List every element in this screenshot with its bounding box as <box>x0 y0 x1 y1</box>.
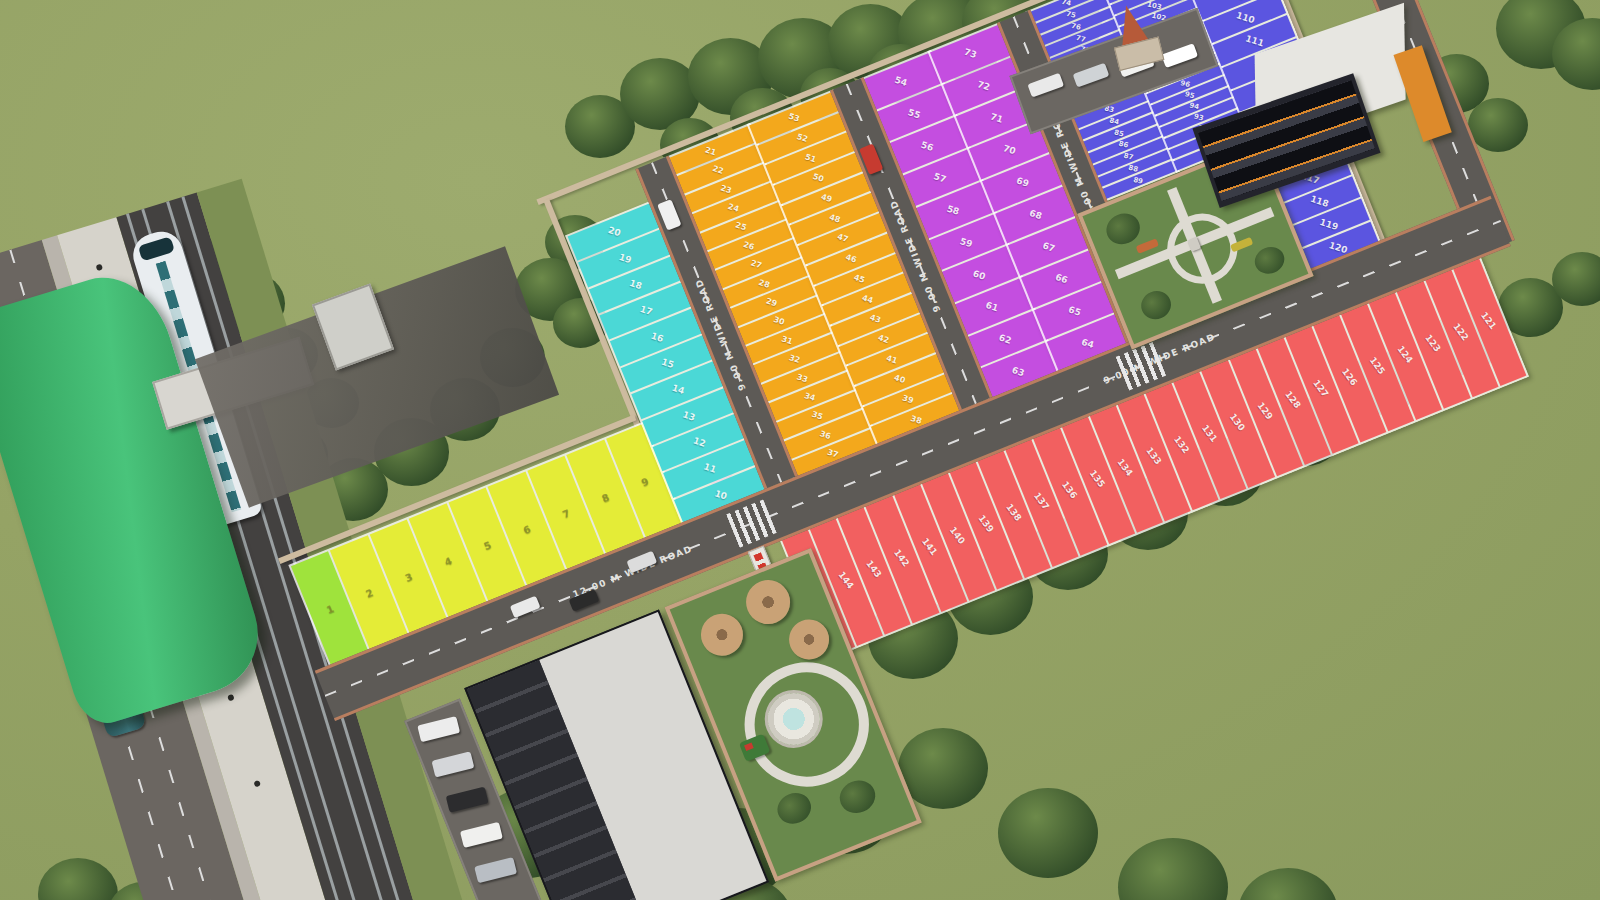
plot-number: 70 <box>1002 143 1017 156</box>
plot-number: 21 <box>704 145 717 157</box>
plot-number: 65 <box>1067 304 1082 317</box>
plot-number: 9 <box>639 475 650 488</box>
umbrella-icon <box>739 573 796 630</box>
plot-number: 36 <box>819 429 832 441</box>
plot-number: 63 <box>1011 365 1026 378</box>
plot-number: 132 <box>1172 434 1191 455</box>
plot-number: 47 <box>837 232 850 244</box>
plot-number: 19 <box>617 252 632 265</box>
plot-number: 54 <box>894 75 909 88</box>
plot-number: 71 <box>989 111 1004 124</box>
plot-number: 61 <box>985 300 1000 313</box>
plot-number: 67 <box>1041 240 1056 253</box>
plot-number: 137 <box>1032 491 1051 512</box>
plot-number: 126 <box>1339 367 1358 388</box>
plot-number: 1 <box>325 602 336 615</box>
plot-number: 140 <box>948 525 967 546</box>
plot-number: 118 <box>1309 194 1330 209</box>
plot-number: 7 <box>561 507 572 520</box>
plot-number: 87 <box>1123 152 1134 162</box>
plot-number: 58 <box>946 204 961 217</box>
plot-number: 37 <box>826 448 839 460</box>
plot-number: 68 <box>1028 208 1043 221</box>
plot-number: 128 <box>1284 389 1303 410</box>
plot-number: 88 <box>1128 164 1139 174</box>
plot-number: 46 <box>845 252 858 264</box>
plot-number: 74 <box>1061 0 1072 8</box>
plot-number: 52 <box>796 132 809 144</box>
parked-car <box>1161 43 1198 68</box>
plot-number: 121 <box>1479 310 1498 331</box>
plot-number: 138 <box>1004 502 1023 523</box>
plot-number: 51 <box>804 152 817 164</box>
plot-number: 40 <box>893 373 906 385</box>
plot-number: 62 <box>998 332 1013 345</box>
plot-number: 133 <box>1144 446 1163 467</box>
plot-number: 143 <box>864 559 883 580</box>
plot-number: 84 <box>1109 116 1120 126</box>
parked-car <box>431 751 474 777</box>
plot-number: 130 <box>1228 412 1247 433</box>
plot-number: 119 <box>1318 217 1339 232</box>
plot-number: 41 <box>885 353 898 365</box>
plot-number: 66 <box>1054 272 1069 285</box>
plot-number: 28 <box>758 277 771 289</box>
plot-number: 123 <box>1423 333 1442 354</box>
plot-number: 32 <box>788 353 801 365</box>
plot-number: 85 <box>1113 128 1124 138</box>
plot-number: 10 <box>713 488 728 501</box>
plot-number: 39 <box>902 393 915 405</box>
plot-number: 86 <box>1118 140 1129 150</box>
plot-number: 50 <box>812 172 825 184</box>
plot-number: 111 <box>1244 33 1265 48</box>
tree <box>1118 838 1228 900</box>
plot-number: 16 <box>649 330 664 343</box>
plot-number: 64 <box>1080 336 1095 349</box>
plot-number: 6 <box>521 523 532 536</box>
plot-number: 44 <box>861 293 874 305</box>
plot-number: 72 <box>976 79 991 92</box>
plot-number: 15 <box>660 357 675 370</box>
plot-number: 142 <box>892 547 911 568</box>
plot-number: 76 <box>1070 22 1081 32</box>
plot-number: 55 <box>907 107 922 120</box>
plot-number: 122 <box>1451 321 1470 342</box>
plot-number: 73 <box>963 47 978 60</box>
plot-number: 53 <box>788 112 801 124</box>
site-plan-scene: 123456789 2019181716151413121110 2122232… <box>0 0 1600 900</box>
plot-number: 109 <box>1225 0 1246 2</box>
plot-number: 45 <box>853 273 866 285</box>
plot-number: 2 <box>364 586 375 599</box>
tree <box>1238 868 1338 900</box>
plot-number: 31 <box>781 334 794 346</box>
plot-number: 144 <box>836 570 855 591</box>
plot-number: 27 <box>750 258 763 270</box>
plot-number: 48 <box>828 212 841 224</box>
plot-number: 56 <box>920 139 935 152</box>
plot-number: 13 <box>681 409 696 422</box>
parked-car <box>474 857 517 883</box>
plot-number: 141 <box>920 536 939 557</box>
plot-number: 30 <box>773 315 786 327</box>
plot-number: 20 <box>607 225 622 238</box>
plot-number: 135 <box>1088 468 1107 489</box>
plot-number: 124 <box>1395 344 1414 365</box>
plot-number: 136 <box>1060 479 1079 500</box>
plot-number: 120 <box>1327 240 1348 255</box>
plot-number: 22 <box>712 164 725 176</box>
plot-number: 24 <box>727 202 740 214</box>
plot-number: 59 <box>959 236 974 249</box>
plot-number: 125 <box>1367 355 1386 376</box>
plot-number: 42 <box>877 333 890 345</box>
plot-number: 4 <box>443 555 454 568</box>
plot-number: 11 <box>702 462 717 475</box>
parked-car <box>417 716 460 742</box>
plot-number: 26 <box>742 239 755 251</box>
plot-number: 12 <box>692 436 707 449</box>
plot-number: 5 <box>482 539 493 552</box>
plot-number: 34 <box>804 391 817 403</box>
plot-number: 25 <box>735 221 748 233</box>
plot-number: 134 <box>1116 457 1135 478</box>
plot-number: 110 <box>1234 10 1255 25</box>
plot-number: 29 <box>765 296 778 308</box>
plot-number: 127 <box>1312 378 1331 399</box>
umbrella-icon <box>783 613 835 665</box>
plot-number: 17 <box>639 304 654 317</box>
parked-car <box>460 822 503 848</box>
plot-number: 139 <box>976 513 995 534</box>
plot-number: 8 <box>600 491 611 504</box>
parked-car <box>1027 73 1064 98</box>
umbrella-icon <box>695 607 750 662</box>
plot-number: 129 <box>1256 400 1275 421</box>
plot-number: 49 <box>820 192 833 204</box>
plot-number: 75 <box>1066 10 1077 20</box>
plot-number: 89 <box>1132 175 1143 185</box>
plot-number: 131 <box>1200 423 1219 444</box>
plot-number: 60 <box>972 268 987 281</box>
plot-number: 23 <box>719 183 732 195</box>
parked-car <box>446 787 489 813</box>
plot-number: 69 <box>1015 176 1030 189</box>
parked-car <box>1073 63 1110 88</box>
plot-number: 77 <box>1075 34 1086 44</box>
plot-number: 18 <box>628 278 643 291</box>
plot-number: 43 <box>869 313 882 325</box>
plot-number: 14 <box>670 383 685 396</box>
tree <box>38 858 118 900</box>
plot-number: 35 <box>811 410 824 422</box>
plot-number: 57 <box>933 171 948 184</box>
plot-number: 3 <box>403 571 414 584</box>
plot-number: 38 <box>910 413 923 425</box>
plot-number: 33 <box>796 372 809 384</box>
